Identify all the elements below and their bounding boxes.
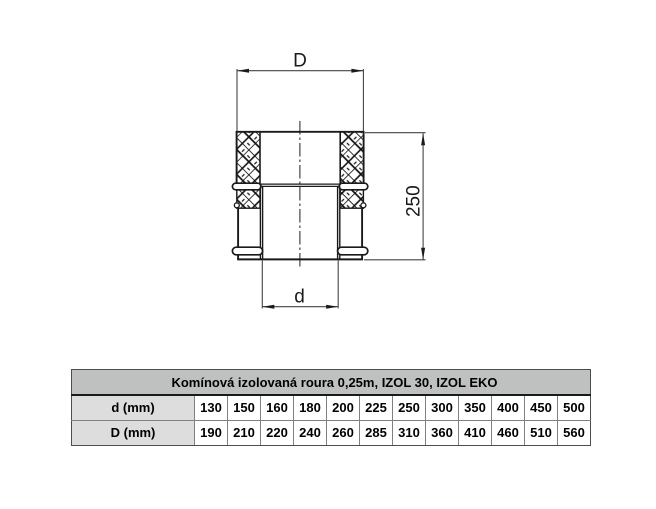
svg-text:d: d (294, 286, 305, 307)
svg-text:D: D (293, 50, 307, 71)
svg-text:250: 250 (404, 185, 425, 217)
